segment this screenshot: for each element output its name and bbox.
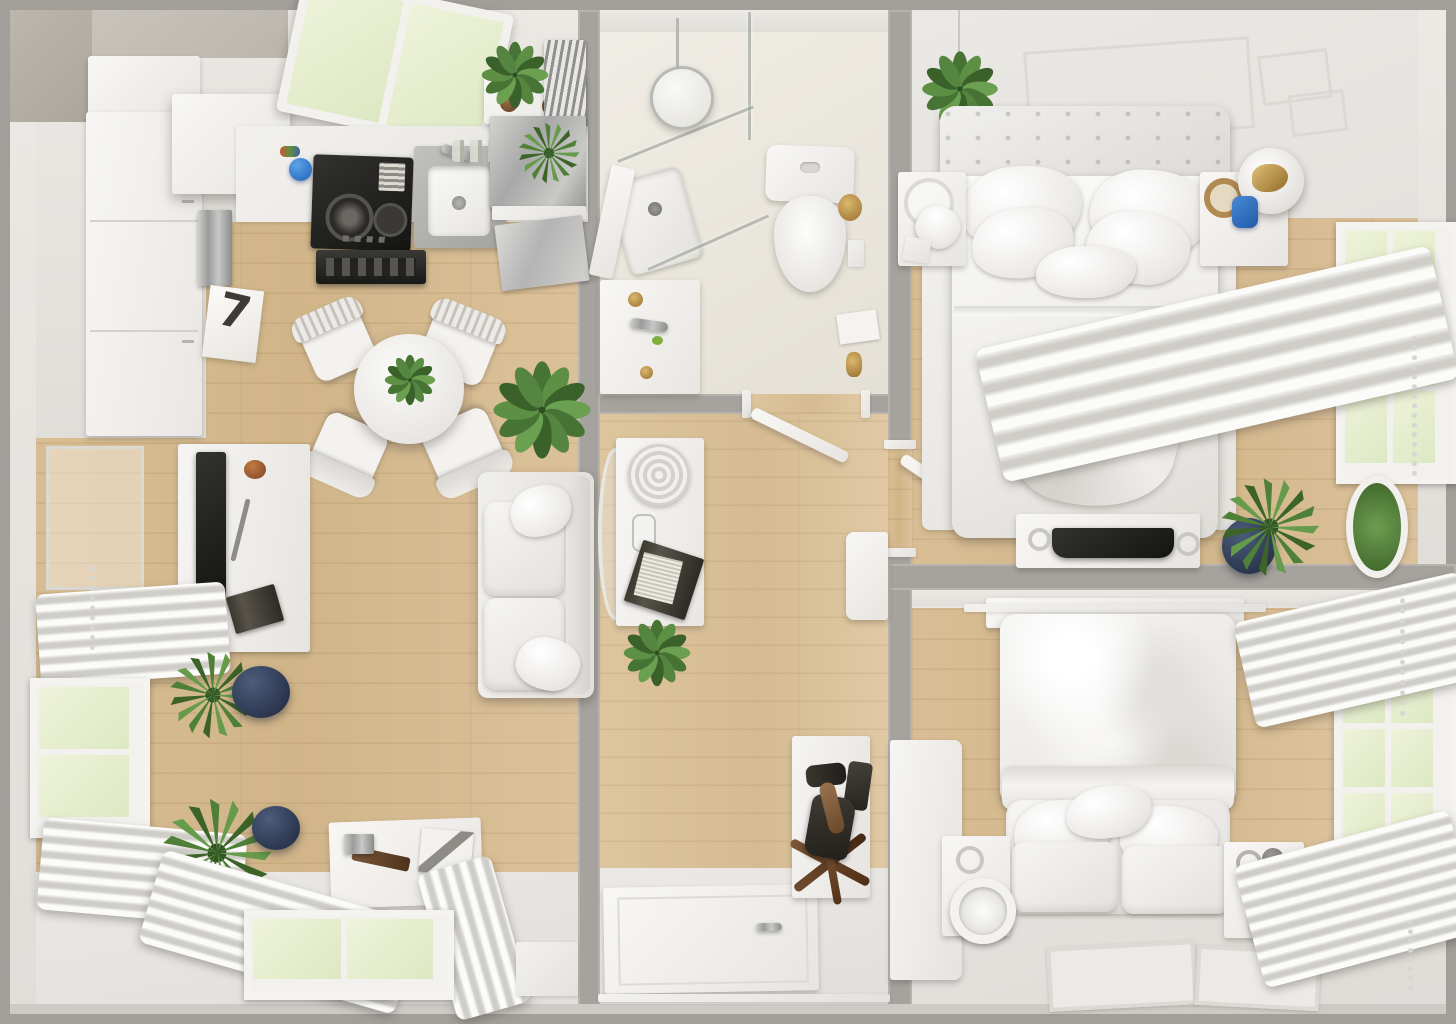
tall-cabinet-divider2 [90, 330, 198, 332]
b2-window-pane-4 [1391, 729, 1433, 787]
curtain-ring-chain-b2-top [1400, 588, 1409, 716]
kitchen-artwork-glyph: 7 [203, 283, 266, 340]
b2-knob-left [956, 846, 984, 874]
dishwasher-top [494, 215, 589, 291]
bathroom-door-trim-right [861, 390, 870, 418]
toilet-flush-button [800, 162, 820, 173]
bottom-window-pane-right [347, 919, 433, 979]
bedroom2-headboard-rail [964, 604, 1266, 612]
shelf-plant [478, 38, 552, 112]
curtain-ring-chain-left [90, 566, 99, 650]
front-door [603, 884, 819, 994]
skylight-pane-left [286, 0, 404, 123]
bath-gold-keys [846, 352, 862, 377]
bed2-ring-lamp-left [950, 878, 1016, 944]
shower-drain [648, 202, 662, 216]
living-large-plant [488, 356, 596, 464]
desk-metal-parts [344, 834, 374, 854]
front-door-handle [756, 923, 782, 931]
bedroom1-door-trim-bottom [884, 548, 916, 557]
blue-ball-ornament [289, 158, 312, 181]
curtain-ring-chain-b1 [1412, 336, 1421, 476]
hob-spec-card [378, 163, 405, 192]
hall-wall-cabinet [846, 532, 888, 620]
bottom-window [244, 910, 454, 1000]
cabinet-handle1 [182, 200, 194, 203]
entry-threshold [598, 994, 890, 1002]
sink-drain [452, 196, 466, 210]
rope-basket [628, 444, 690, 506]
gold-shell-dish [838, 194, 862, 221]
toilet-tank [765, 144, 855, 203]
bedroom1-pot-plant [1214, 474, 1326, 580]
colorful-trinket [280, 146, 300, 157]
front-door-panel-line [617, 894, 809, 985]
top-left-wall-block [10, 10, 92, 122]
floor-mat-left [1046, 940, 1197, 1012]
floor-plan: 7 [0, 0, 1456, 1024]
navy-pot-lower [252, 806, 300, 850]
bathroom-top-wall-face [598, 10, 890, 32]
kitchen-top-wall-strip [92, 10, 288, 58]
curtain-ring-chain-b2-bottom [1408, 920, 1417, 990]
pendant-lamp-cord [676, 18, 679, 70]
table-centerpiece-plant [382, 352, 438, 408]
left-wall-face [10, 10, 36, 1014]
bed2-seat-cushion-right [1122, 846, 1230, 914]
decor-gourd [244, 460, 266, 479]
bed2-seat-cushion-left [1012, 842, 1118, 912]
hob-burner-small [373, 202, 408, 237]
pendant-glass-lamp [650, 66, 714, 130]
wall-wreath-oval [1346, 476, 1408, 578]
hood-vents [326, 258, 416, 276]
nightstand-left-card [902, 236, 931, 264]
navy-pot-mid [232, 666, 290, 718]
hall-plant [620, 616, 694, 690]
bottom-window-pane-left [253, 919, 341, 979]
dresser-knob-left [1028, 528, 1051, 551]
kitchen-artwork-paper: 7 [202, 285, 264, 363]
bed1-headboard [940, 106, 1230, 186]
ceiling-frame-small2 [1288, 89, 1349, 138]
vanity-knob-gold [628, 292, 643, 307]
bath-paper-item [836, 309, 880, 344]
left-window [30, 678, 150, 838]
left-window-pane-top [39, 687, 129, 749]
dresser-knob-right [1176, 532, 1200, 556]
b2-window-pane-3 [1343, 729, 1385, 787]
toaster [198, 210, 232, 286]
bathroom-door-trim-left [742, 390, 751, 418]
sofa [478, 472, 594, 698]
fridge-top-plant [516, 120, 582, 186]
blue-mug [1232, 196, 1258, 228]
left-window-pane-bottom [39, 755, 129, 817]
tall-cabinet-divider1 [90, 220, 198, 222]
hob-knobs [343, 235, 389, 243]
shower-glass-vertical [748, 12, 751, 140]
cabinet-handle2 [182, 340, 194, 343]
gas-hob [310, 154, 413, 251]
bath-dispenser [848, 240, 864, 267]
range-hood [316, 250, 426, 284]
book-pages-edge [634, 552, 683, 604]
bedroom1-door-trim-top [884, 440, 916, 449]
dresser-tv [1052, 528, 1174, 558]
floor-frame-blank [516, 942, 578, 996]
vanity-soap-green [652, 336, 663, 345]
vanity-drain-gold [640, 366, 653, 379]
